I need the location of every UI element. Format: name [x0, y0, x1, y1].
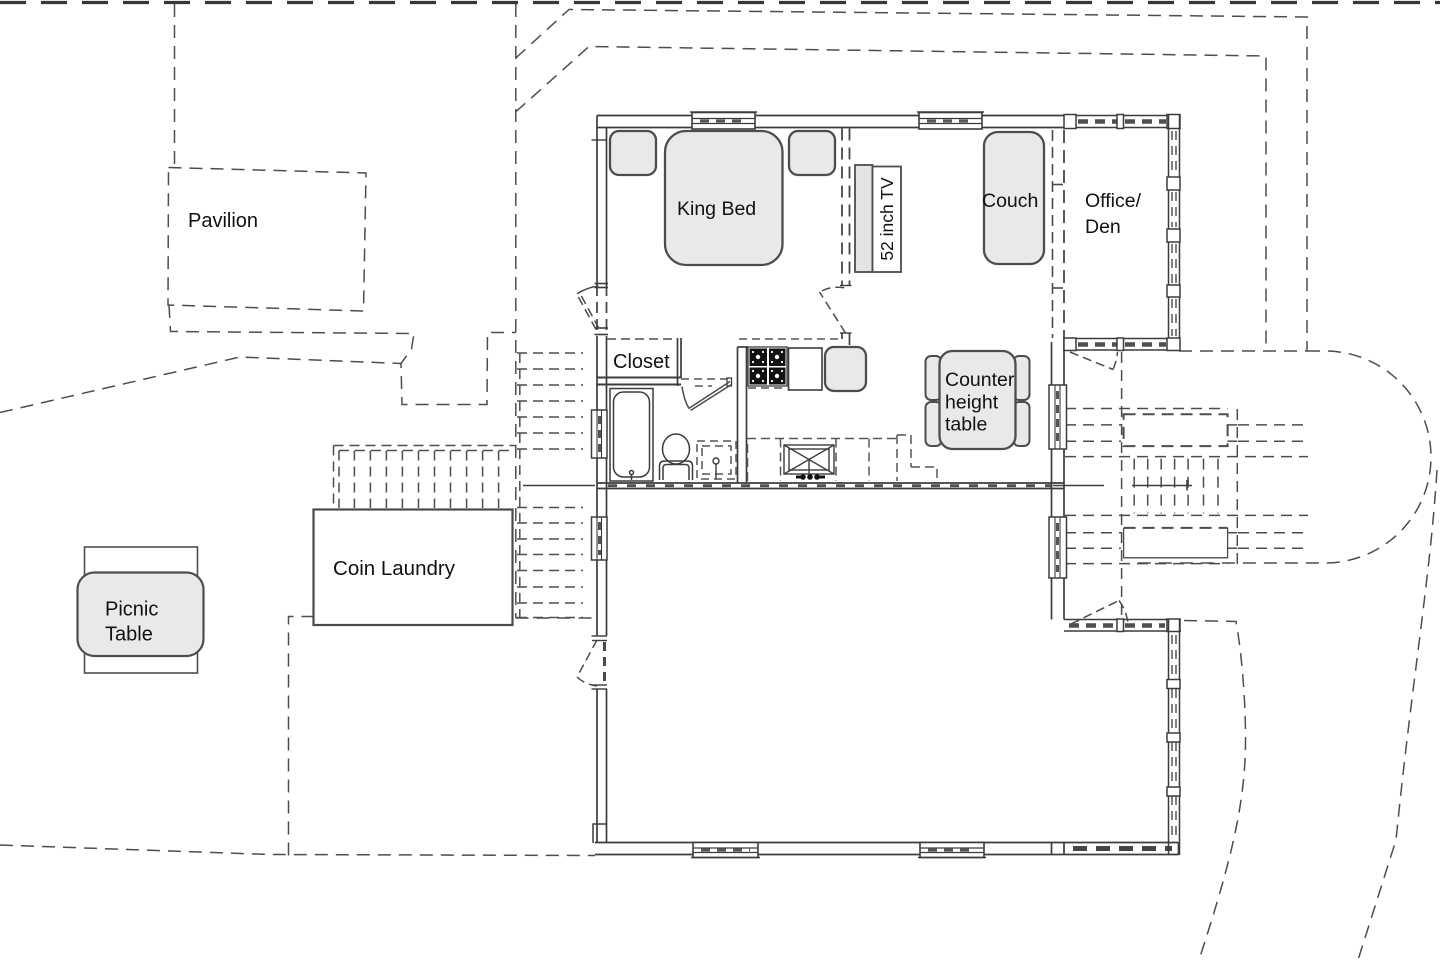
svg-text:Picnic: Picnic — [105, 599, 158, 621]
svg-text:table: table — [945, 414, 987, 436]
svg-text:Counter: Counter — [945, 369, 1015, 391]
svg-text:Office/: Office/ — [1085, 190, 1142, 212]
svg-text:King Bed: King Bed — [677, 198, 756, 220]
svg-text:height: height — [945, 392, 999, 414]
svg-text:Den: Den — [1085, 216, 1121, 238]
svg-text:Pavilion: Pavilion — [188, 210, 258, 232]
svg-text:Table: Table — [105, 624, 153, 646]
svg-text:Closet: Closet — [613, 351, 670, 373]
svg-text:52 inch TV: 52 inch TV — [877, 177, 897, 261]
svg-text:Couch: Couch — [982, 190, 1038, 212]
svg-text:Coin Laundry: Coin Laundry — [333, 557, 456, 580]
